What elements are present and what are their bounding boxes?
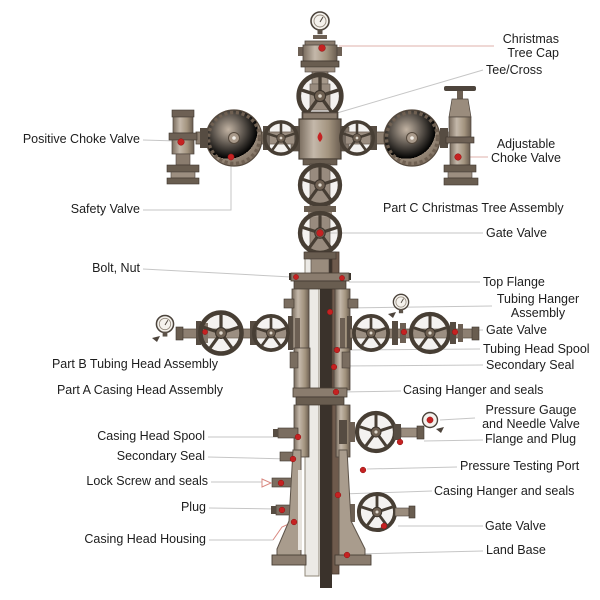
handwheel-icon (357, 413, 395, 451)
master-gate-valves (300, 164, 340, 273)
handwheel-icon (341, 122, 373, 154)
handwheel-icon (411, 314, 449, 352)
wing-valve-disc-icon (384, 110, 440, 166)
handwheel-icon (359, 494, 395, 530)
handwheel-icon (300, 165, 340, 205)
left-arm-pressure-gauge-icon (152, 315, 174, 342)
label-tee-cross: Tee/Cross (486, 64, 542, 78)
label-casing-hanger-upper: Casing Hanger and seals (403, 384, 543, 398)
adjustable-choke-valve-part (444, 86, 478, 185)
label-pressure-testing-port: Pressure Testing Port (460, 460, 579, 474)
diagram-page: Positive Choke Valve Safety Valve Bolt, … (0, 0, 600, 600)
label-safety-valve: Safety Valve (71, 203, 140, 217)
label-casing-head-housing: Casing Head Housing (84, 533, 206, 547)
casing-head-assembly (262, 388, 444, 565)
label-adjustable-choke-valve: Adjustable Choke Valve (490, 138, 562, 166)
label-lock-screw-seals: Lock Screw and seals (86, 475, 208, 489)
tree-top-pressure-gauge-icon (311, 12, 329, 39)
label-bolt-nut: Bolt, Nut (92, 262, 140, 276)
right-branch (340, 86, 478, 185)
handwheel-icon (354, 316, 388, 350)
swab-valve-part (299, 72, 342, 119)
label-top-flange: Top Flange (483, 276, 545, 290)
positive-choke-valve-part (167, 110, 199, 184)
right-arm-pressure-gauge-icon (388, 294, 409, 318)
label-pressure-gauge-needle: Pressure Gauge and Needle Valve (477, 404, 585, 432)
left-branch (167, 110, 300, 184)
label-part-b-tubing-head: Part B Tubing Head Assembly (52, 358, 218, 372)
label-part-a-casing-head: Part A Casing Head Assembly (57, 384, 223, 398)
label-part-c-christmas-tree: Part C Christmas Tree Assembly (383, 202, 564, 216)
label-casing-hanger-lower: Casing Hanger and seals (434, 485, 574, 499)
label-secondary-seal-right: Secondary Seal (486, 359, 574, 373)
handwheel-icon (254, 316, 288, 350)
production-casing-pipes (305, 252, 339, 588)
label-christmas-tree-cap: Christmas Tree Cap (497, 33, 559, 61)
label-casing-head-spool: Casing Head Spool (97, 430, 205, 444)
label-gate-valve-upper: Gate Valve (486, 227, 547, 241)
label-tubing-hanger-assembly: Tubing Hanger Assembly (494, 293, 582, 321)
label-gate-valve-lower: Gate Valve (485, 520, 546, 534)
label-secondary-seal-left: Secondary Seal (117, 450, 205, 464)
label-flange-and-plug: Flange and Plug (485, 433, 576, 447)
label-positive-choke-valve: Positive Choke Valve (23, 133, 140, 147)
label-land-base: Land Base (486, 544, 546, 558)
needle-valve-pressure-gauge-icon (423, 413, 445, 434)
label-tubing-head-spool: Tubing Head Spool (483, 343, 590, 357)
handwheel-icon (265, 122, 297, 154)
label-plug: Plug (181, 501, 206, 515)
label-gate-valve-middle: Gate Valve (486, 324, 547, 338)
